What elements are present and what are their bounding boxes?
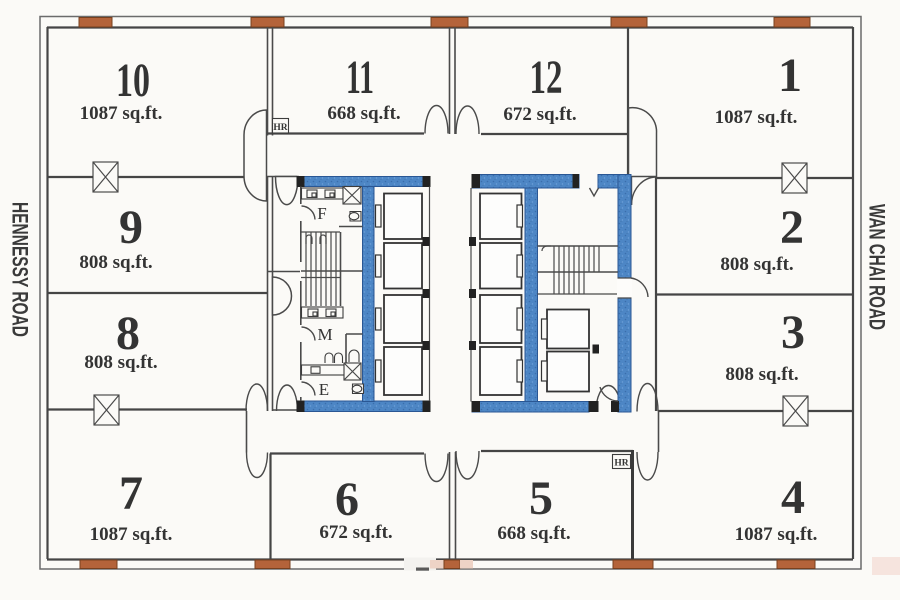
svg-text:672 sq.ft.: 672 sq.ft. <box>503 104 576 125</box>
svg-text:808 sq.ft.: 808 sq.ft. <box>84 352 157 373</box>
svg-text:1: 1 <box>778 49 802 102</box>
svg-text:1087 sq.ft.: 1087 sq.ft. <box>715 107 798 128</box>
svg-text:668 sq.ft.: 668 sq.ft. <box>497 523 570 544</box>
svg-text:M: M <box>317 325 332 344</box>
svg-text:2: 2 <box>780 201 804 254</box>
svg-text:1087 sq.ft.: 1087 sq.ft. <box>80 103 163 124</box>
svg-text:3: 3 <box>781 306 805 359</box>
svg-text:808 sq.ft.: 808 sq.ft. <box>720 254 793 275</box>
svg-text:4: 4 <box>781 471 805 524</box>
svg-text:9: 9 <box>119 201 143 254</box>
svg-text:808 sq.ft.: 808 sq.ft. <box>725 364 798 385</box>
svg-text:F: F <box>317 204 326 223</box>
svg-text:HR: HR <box>614 459 628 469</box>
svg-text:10: 10 <box>116 54 150 107</box>
svg-text:7: 7 <box>119 467 143 520</box>
svg-text:HENNESSY ROAD: HENNESSY ROAD <box>8 202 33 337</box>
svg-text:E: E <box>319 380 329 399</box>
svg-text:WAN CHAI ROAD: WAN CHAI ROAD <box>865 204 890 330</box>
svg-text:1087 sq.ft.: 1087 sq.ft. <box>735 524 818 545</box>
svg-text:5: 5 <box>529 472 553 525</box>
svg-text:12: 12 <box>530 51 563 104</box>
svg-text:808 sq.ft.: 808 sq.ft. <box>79 252 152 273</box>
svg-text:11: 11 <box>346 51 374 104</box>
svg-text:668 sq.ft.: 668 sq.ft. <box>327 103 400 124</box>
svg-text:672 sq.ft.: 672 sq.ft. <box>319 522 392 543</box>
svg-text:6: 6 <box>335 473 359 526</box>
svg-text:HR: HR <box>273 123 287 133</box>
svg-text:1087 sq.ft.: 1087 sq.ft. <box>90 524 173 545</box>
